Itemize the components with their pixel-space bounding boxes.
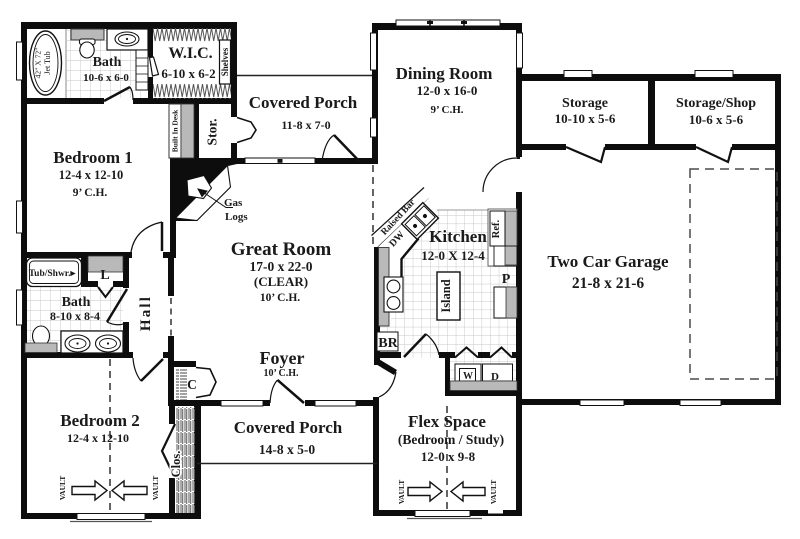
- svg-text:21-8 x 21-6: 21-8 x 21-6: [572, 275, 645, 292]
- svg-text:Covered Porch: Covered Porch: [249, 93, 358, 112]
- svg-text:W: W: [463, 371, 473, 382]
- svg-text:10-6 x 6-0: 10-6 x 6-0: [83, 72, 129, 84]
- svg-text:Flex Space: Flex Space: [408, 412, 486, 431]
- svg-text:Tub/Shwr.▸: Tub/Shwr.▸: [29, 269, 77, 279]
- svg-text:12-4 x 12-10: 12-4 x 12-10: [67, 431, 129, 445]
- svg-text:Bedroom 2: Bedroom 2: [60, 411, 140, 430]
- svg-text:10’ C.H.: 10’ C.H.: [263, 368, 299, 379]
- svg-text:Shelves: Shelves: [220, 47, 230, 76]
- svg-text:BR: BR: [378, 336, 398, 351]
- svg-text:Built In Desk: Built In Desk: [171, 109, 180, 152]
- svg-text:Great Room: Great Room: [231, 239, 332, 260]
- svg-text:Dining Room: Dining Room: [396, 64, 493, 83]
- svg-text:9’ C.H.: 9’ C.H.: [73, 187, 108, 199]
- svg-text:Bath: Bath: [93, 55, 122, 70]
- svg-text:P: P: [502, 272, 511, 287]
- svg-text:VAULT: VAULT: [489, 480, 498, 505]
- svg-text:42” X 72”: 42” X 72”: [34, 48, 43, 79]
- svg-text:6-10 x 6-2: 6-10 x 6-2: [161, 66, 215, 81]
- svg-text:Clos.: Clos.: [169, 451, 183, 478]
- svg-text:Island: Island: [439, 279, 453, 312]
- svg-text:(Bedroom / Study): (Bedroom / Study): [398, 432, 504, 447]
- svg-text:12-4 x 12-10: 12-4 x 12-10: [59, 168, 124, 182]
- svg-text:Logs: Logs: [225, 211, 248, 223]
- svg-text:Jet Tub: Jet Tub: [43, 51, 52, 74]
- svg-text:11-8 x 7-0: 11-8 x 7-0: [281, 118, 330, 132]
- svg-text:Bedroom 1: Bedroom 1: [53, 148, 133, 167]
- svg-text:9’ C.H.: 9’ C.H.: [430, 104, 463, 116]
- svg-text:VAULT: VAULT: [58, 476, 67, 501]
- svg-text:10-6 x 5-6: 10-6 x 5-6: [689, 112, 744, 127]
- svg-text:Gas: Gas: [224, 197, 243, 209]
- svg-text:Stor.: Stor.: [205, 119, 220, 146]
- svg-text:Storage/Shop: Storage/Shop: [676, 96, 756, 111]
- svg-text:Bath: Bath: [62, 295, 91, 310]
- svg-text:Covered Porch: Covered Porch: [234, 418, 343, 437]
- svg-text:12-0 X 12-4: 12-0 X 12-4: [421, 248, 485, 263]
- svg-text:17-0 x 22-0: 17-0 x 22-0: [250, 259, 313, 274]
- svg-text:10’ C.H.: 10’ C.H.: [260, 292, 300, 304]
- svg-text:VAULT: VAULT: [397, 480, 406, 505]
- svg-text:W.I.C.: W.I.C.: [168, 45, 212, 62]
- svg-text:8-10 x 8-4: 8-10 x 8-4: [50, 309, 100, 323]
- svg-text:Storage: Storage: [562, 96, 608, 111]
- svg-text:VAULT: VAULT: [151, 476, 160, 501]
- svg-text:12-0 x 16-0: 12-0 x 16-0: [417, 83, 478, 98]
- svg-text:C: C: [187, 377, 197, 392]
- svg-text:Foyer: Foyer: [260, 348, 305, 368]
- svg-text:Kitchen: Kitchen: [429, 227, 487, 246]
- svg-text:Hall: Hall: [138, 295, 154, 331]
- svg-text:Ref.: Ref.: [491, 219, 502, 238]
- svg-text:14-8 x 5-0: 14-8 x 5-0: [259, 442, 315, 457]
- svg-text:Two Car Garage: Two Car Garage: [547, 252, 669, 271]
- svg-text:10-10 x 5-6: 10-10 x 5-6: [555, 111, 616, 126]
- svg-text:D: D: [491, 371, 499, 383]
- svg-text:(CLEAR): (CLEAR): [254, 274, 308, 289]
- svg-text:L: L: [100, 268, 109, 283]
- svg-text:12-0 x 9-8: 12-0 x 9-8: [421, 449, 476, 464]
